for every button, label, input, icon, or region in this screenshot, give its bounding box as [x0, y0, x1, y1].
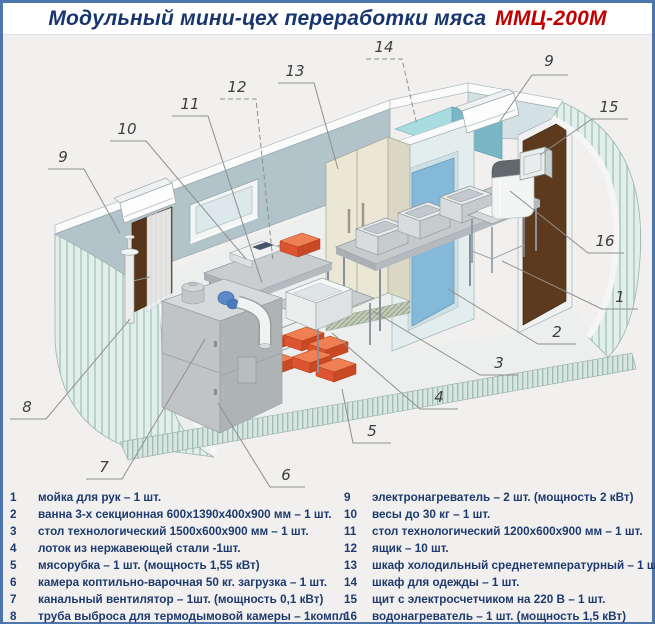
legend-item: 8труба выброса для термодымовой камеры –… — [10, 608, 342, 625]
legend-item-text: ящик – 10 шт. — [372, 542, 650, 555]
callout-11: 11 — [180, 95, 199, 113]
legend-item: 5мясорубка – 1 шт. (мощность 1,55 кВт) — [10, 557, 342, 574]
legend-item-text: канальный вентилятор – 1шт. (мощность 0,… — [38, 593, 342, 606]
entrance-door — [518, 109, 572, 333]
callout-7: 7 — [99, 458, 109, 476]
legend-item-text: электронагреватель – 2 шт. (мощность 2 к… — [372, 491, 650, 504]
callout-1: 1 — [615, 288, 625, 306]
legend-item-number: 5 — [10, 559, 38, 572]
page-title: Модульный мини-цех переработки мяса ММЦ-… — [3, 3, 652, 34]
legend-item-text: шкаф для одежды – 1 шт. — [372, 576, 650, 589]
legend-item: 4лоток из нержавеющей стали -1шт. — [10, 540, 342, 557]
title-text: Модульный мини-цех переработки мяса — [48, 7, 486, 31]
legend-item-text: ванна 3-х секционная 600х1390х400х900 мм… — [38, 508, 342, 521]
legend-item: 13шкаф холодильный среднетемпературный –… — [344, 557, 650, 574]
legend-item-text: весы до 30 кг – 1 шт. — [372, 508, 650, 521]
legend-item-text: щит с электросчетчиком на 220 В – 1 шт. — [372, 593, 650, 606]
page-frame: Модульный мини-цех переработки мяса ММЦ-… — [0, 0, 655, 624]
callout-9-left: 9 — [58, 148, 68, 166]
legend-item-text: стол технологический 1500х600х900 мм – 1… — [38, 525, 342, 538]
module-cutaway-drawing: 9 10 11 12 13 14 9 15 16 1 2 3 4 5 6 7 8 — [3, 35, 652, 491]
legend-item-number: 7 — [10, 593, 38, 606]
legend-item-text: мойка для рук – 1 шт. — [38, 491, 342, 504]
callout-4: 4 — [434, 388, 444, 406]
legend-item-text: труба выброса для термодымовой камеры – … — [38, 610, 349, 623]
legend-item: 6камера коптильно-варочная 50 кг. загруз… — [10, 574, 342, 591]
legend: 1мойка для рук – 1 шт. 2ванна 3-х секцио… — [3, 487, 652, 622]
title-model-text: ММЦ-200М — [495, 7, 606, 31]
legend-item-number: 10 — [344, 508, 372, 521]
legend-item-number: 15 — [344, 593, 372, 606]
legend-item: 16водонагреватель – 1 шт. (мощность 1,5 … — [344, 608, 650, 625]
legend-item: 14шкаф для одежды – 1 шт. — [344, 574, 650, 591]
legend-item-number: 6 — [10, 576, 38, 589]
legend-item-text: шкаф холодильный среднетемпературный – 1… — [372, 559, 655, 572]
legend-item-number: 3 — [10, 525, 38, 538]
callout-8: 8 — [22, 398, 32, 416]
legend-item: 11стол технологический 1200х600х900 мм –… — [344, 523, 650, 540]
callout-3: 3 — [494, 354, 504, 372]
callout-5: 5 — [367, 422, 377, 440]
callout-13: 13 — [285, 62, 304, 80]
legend-item-number: 1 — [10, 491, 38, 504]
callout-16: 16 — [595, 232, 614, 250]
legend-item-text: лоток из нержавеющей стали -1шт. — [38, 542, 342, 555]
legend-item: 9электронагреватель – 2 шт. (мощность 2 … — [344, 489, 650, 506]
legend-item: 1мойка для рук – 1 шт. — [10, 489, 342, 506]
legend-item-number: 9 — [344, 491, 372, 504]
legend-item-number: 4 — [10, 542, 38, 555]
callout-2: 2 — [552, 323, 562, 341]
legend-item-number: 14 — [344, 576, 372, 589]
callout-6: 6 — [281, 466, 291, 484]
legend-item-number: 13 — [344, 559, 372, 572]
legend-item-text: стол технологический 1200х600х900 мм – 1… — [372, 525, 650, 538]
left-door — [132, 207, 172, 313]
legend-item-text: водонагреватель – 1 шт. (мощность 1,5 кВ… — [372, 610, 650, 623]
callout-10: 10 — [117, 120, 136, 138]
legend-column-right: 9электронагреватель – 2 шт. (мощность 2 … — [344, 489, 650, 625]
legend-item-number: 8 — [10, 610, 38, 623]
callout-9-right: 9 — [544, 52, 554, 70]
legend-item-number: 12 — [344, 542, 372, 555]
callout-12: 12 — [227, 78, 246, 96]
legend-item: 3стол технологический 1500х600х900 мм – … — [10, 523, 342, 540]
legend-item: 12ящик – 10 шт. — [344, 540, 650, 557]
legend-item-number: 2 — [10, 508, 38, 521]
legend-item: 15щит с электросчетчиком на 220 В – 1 шт… — [344, 591, 650, 608]
legend-item-text: камера коптильно-варочная 50 кг. загрузк… — [38, 576, 342, 589]
illustration-canvas: 9 10 11 12 13 14 9 15 16 1 2 3 4 5 6 7 8 — [3, 34, 652, 622]
legend-item: 7канальный вентилятор – 1шт. (мощность 0… — [10, 591, 342, 608]
callout-15: 15 — [599, 98, 618, 116]
legend-item-text: мясорубка – 1 шт. (мощность 1,55 кВт) — [38, 559, 342, 572]
legend-item-number: 11 — [344, 525, 372, 538]
legend-column-left: 1мойка для рук – 1 шт. 2ванна 3-х секцио… — [10, 489, 342, 625]
legend-item-number: 16 — [344, 610, 372, 623]
callout-14: 14 — [374, 38, 393, 56]
legend-item: 2ванна 3-х секционная 600х1390х400х900 м… — [10, 506, 342, 523]
legend-item: 10весы до 30 кг – 1 шт. — [344, 506, 650, 523]
electrical-panel — [520, 147, 552, 180]
